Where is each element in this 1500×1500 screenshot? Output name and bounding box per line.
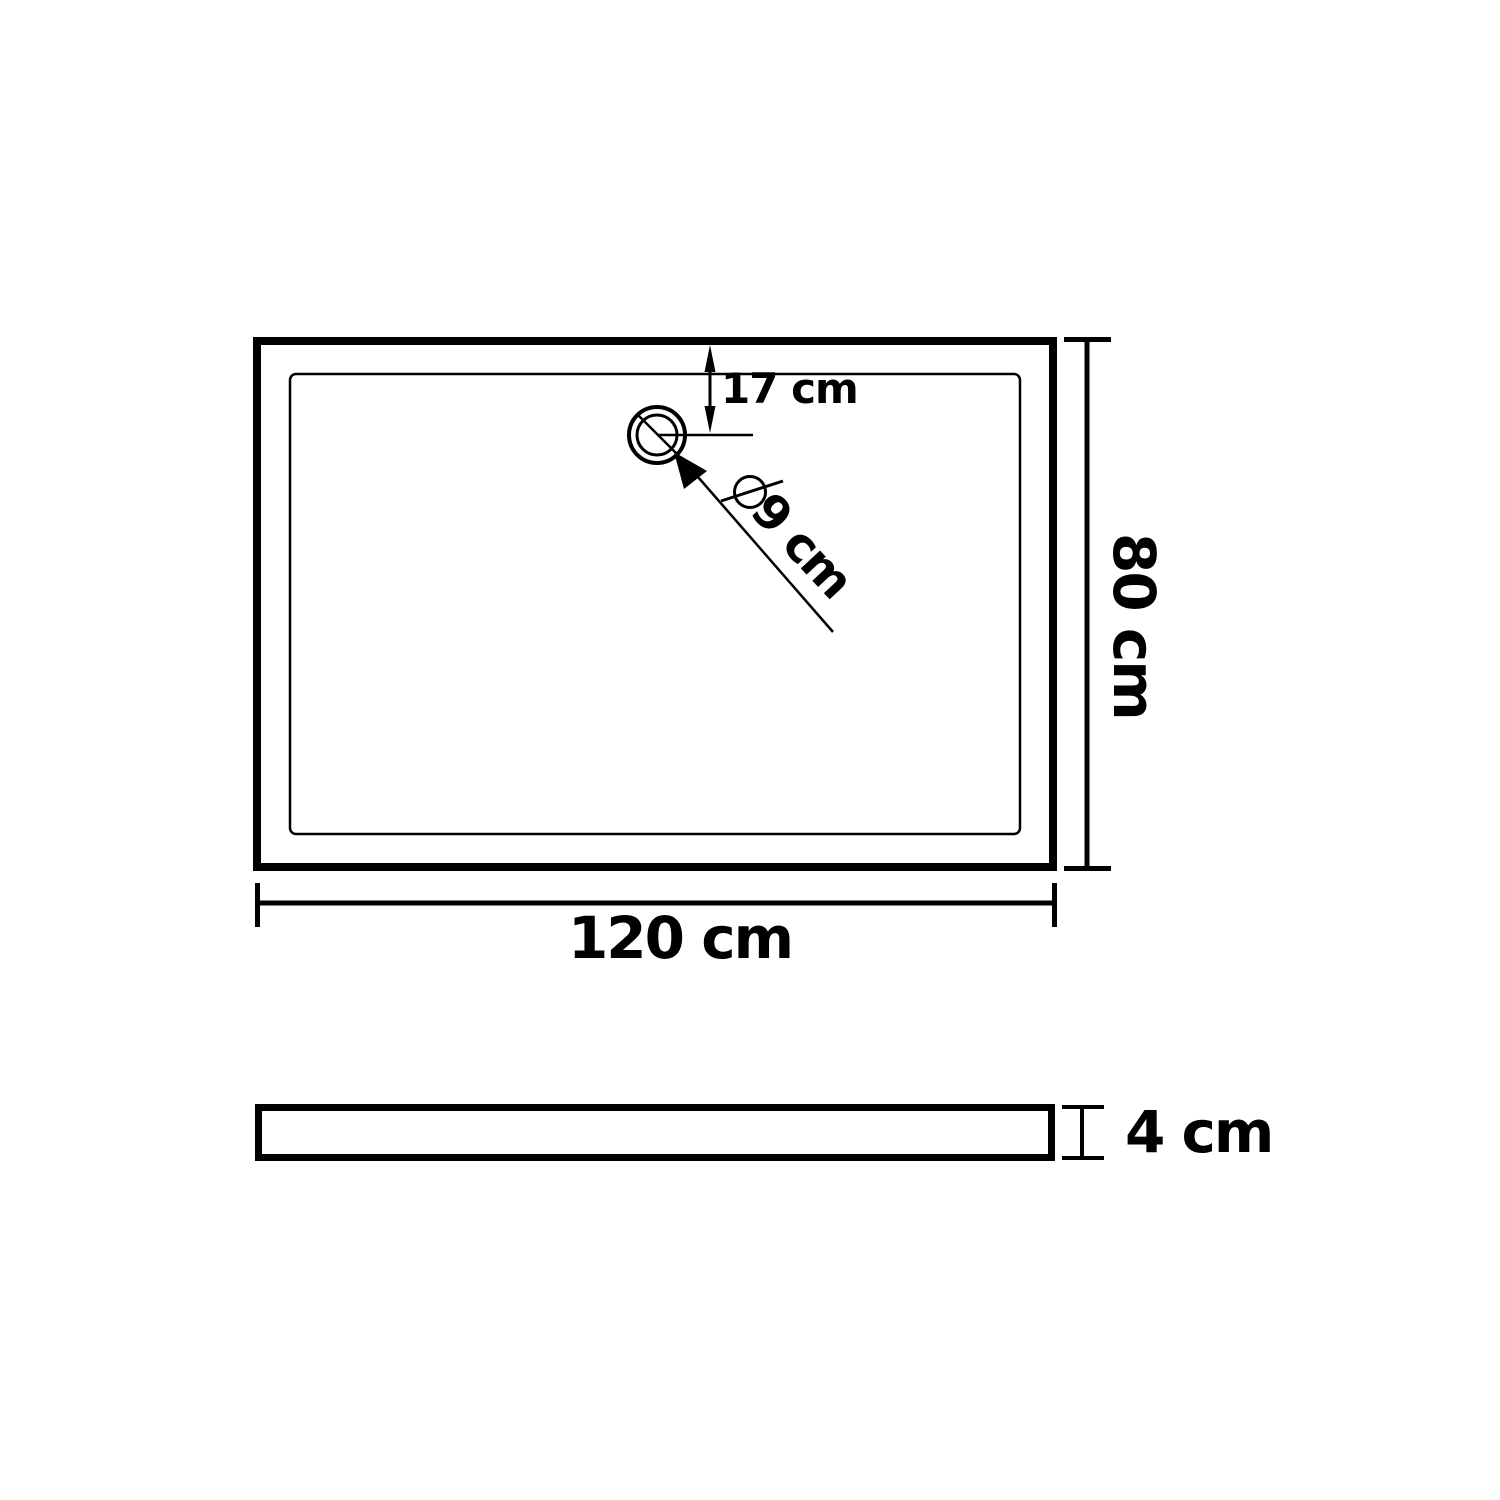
diagram-background: 17 cm 9 cm 80 cm 120 cm 4 cm [0, 0, 1500, 1500]
tray-inner-rect [290, 374, 1020, 834]
drain-offset-down-arrowhead [705, 406, 716, 433]
drain-offset-up-arrowhead [705, 345, 716, 372]
drain-offset-label: 17 cm [721, 368, 858, 410]
shower-tray-dimension-diagram [0, 0, 1500, 1500]
tray-side-view-rect [259, 1108, 1052, 1158]
thickness-dimension-line [1062, 1107, 1104, 1158]
tray-outer-rect [257, 341, 1053, 867]
tray-width-label: 120 cm [530, 909, 830, 967]
tray-thickness-label: 4 cm [1125, 1103, 1272, 1161]
tray-depth-label: 80 cm [1103, 533, 1163, 703]
